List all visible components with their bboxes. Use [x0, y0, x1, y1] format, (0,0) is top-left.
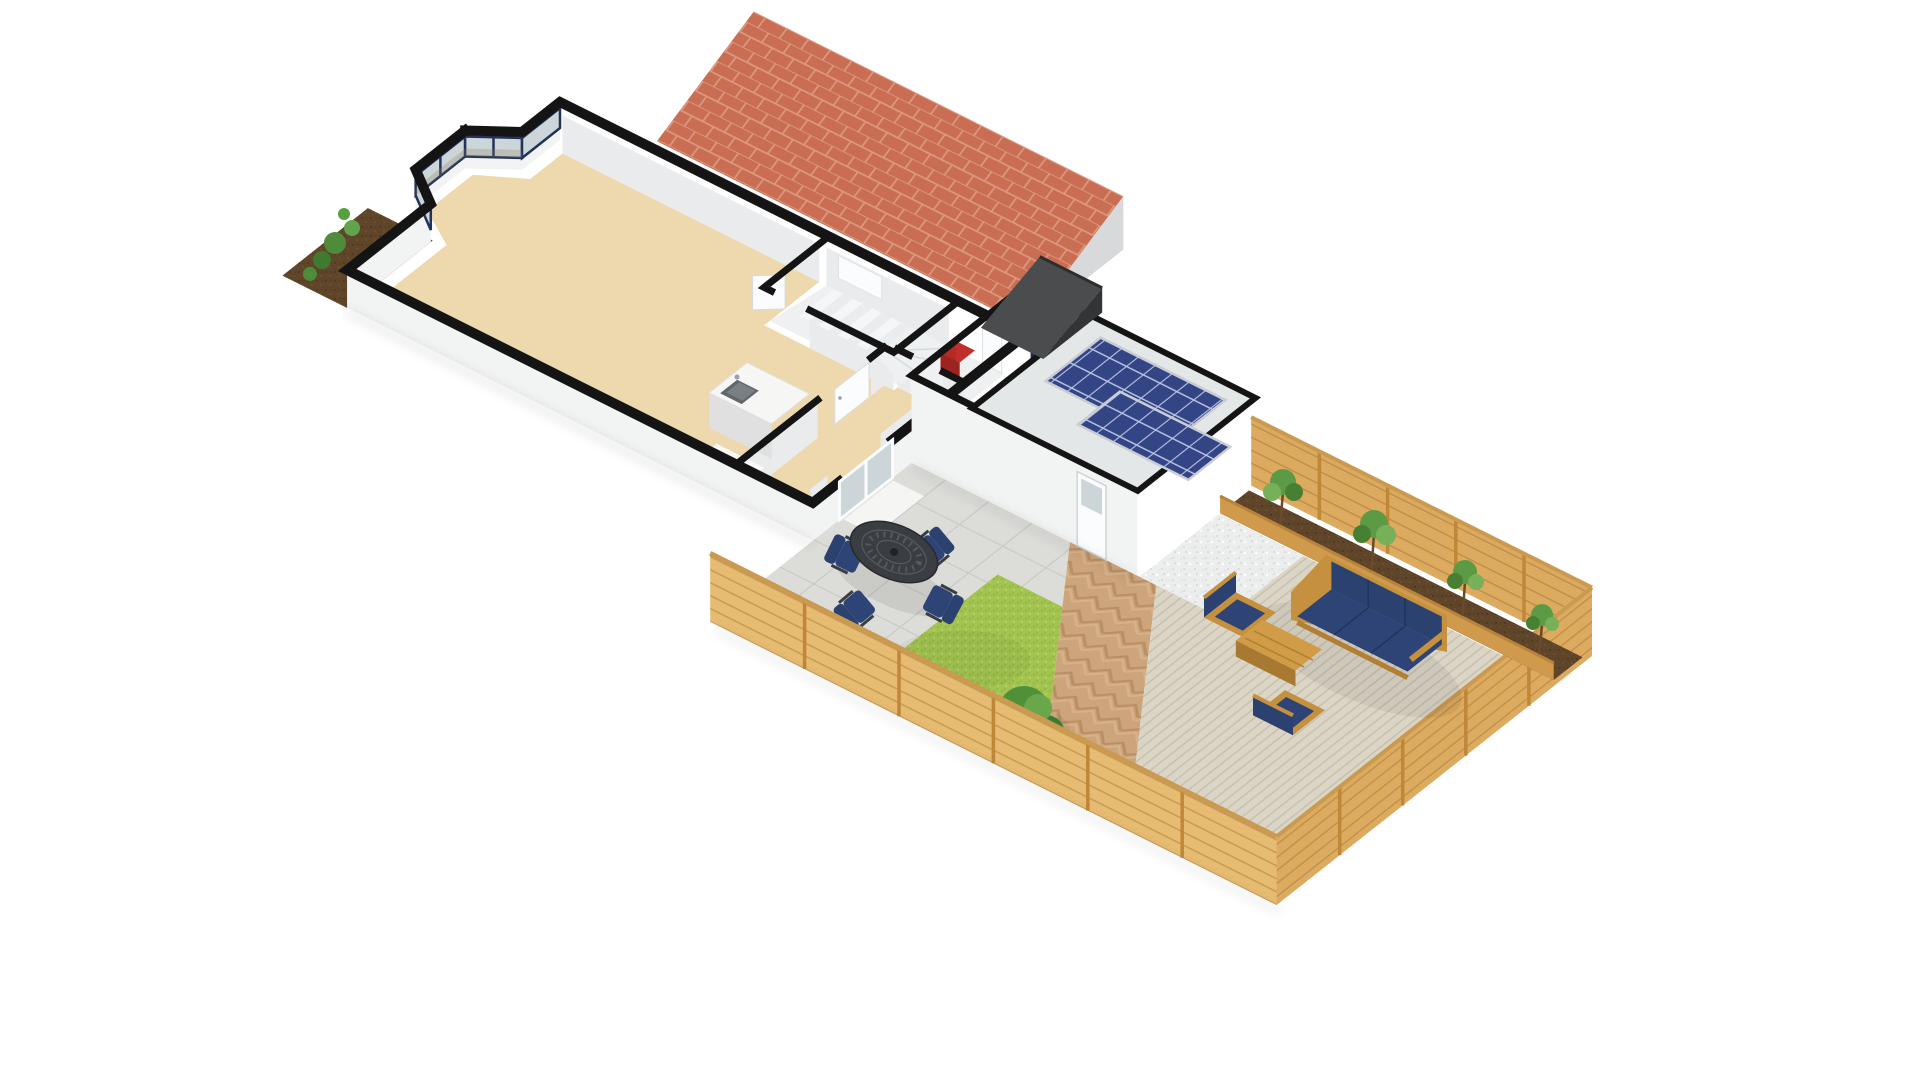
garage-side-door	[1077, 472, 1106, 561]
door-handle	[838, 396, 842, 400]
floorplan-svg	[0, 0, 1920, 1080]
floorplan-render-canvas	[0, 0, 1920, 1080]
faucet	[735, 375, 740, 380]
